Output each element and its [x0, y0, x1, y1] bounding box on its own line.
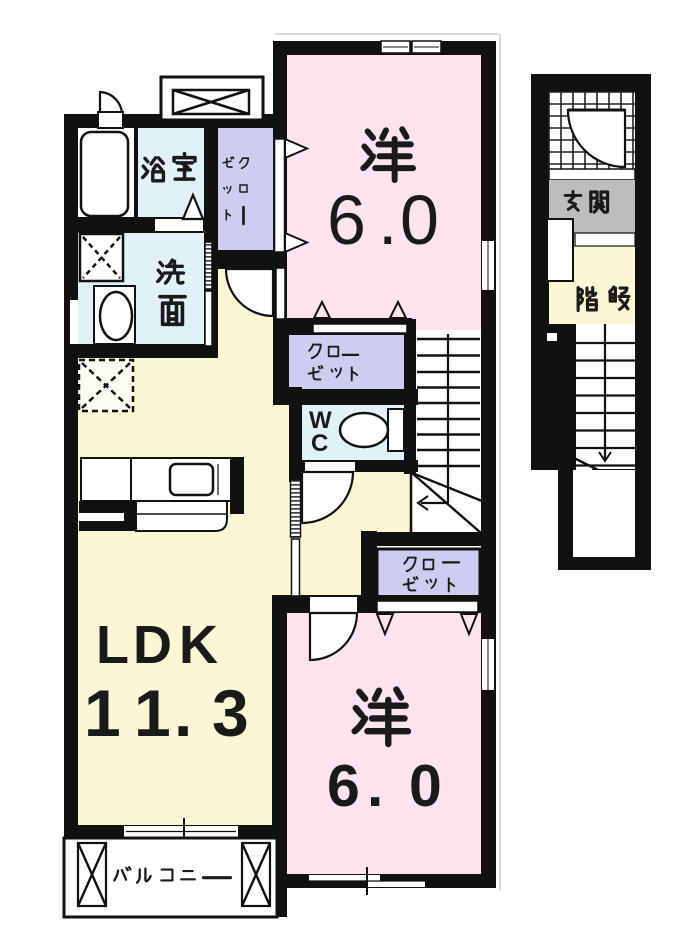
svg-text:3: 3 — [212, 676, 249, 750]
svg-text:0: 0 — [409, 753, 442, 819]
svg-text:D: D — [133, 615, 172, 675]
svg-text:.: . — [367, 753, 383, 819]
svg-text:0: 0 — [400, 181, 439, 259]
svg-text:6: 6 — [327, 181, 366, 259]
svg-text:C: C — [311, 430, 328, 457]
svg-text:.: . — [174, 676, 192, 750]
svg-text:1: 1 — [134, 676, 171, 750]
svg-text:.: . — [378, 181, 397, 259]
svg-text:K: K — [179, 615, 218, 675]
svg-text:1: 1 — [84, 676, 121, 750]
svg-text:L: L — [96, 615, 129, 675]
svg-text:6: 6 — [327, 753, 360, 819]
